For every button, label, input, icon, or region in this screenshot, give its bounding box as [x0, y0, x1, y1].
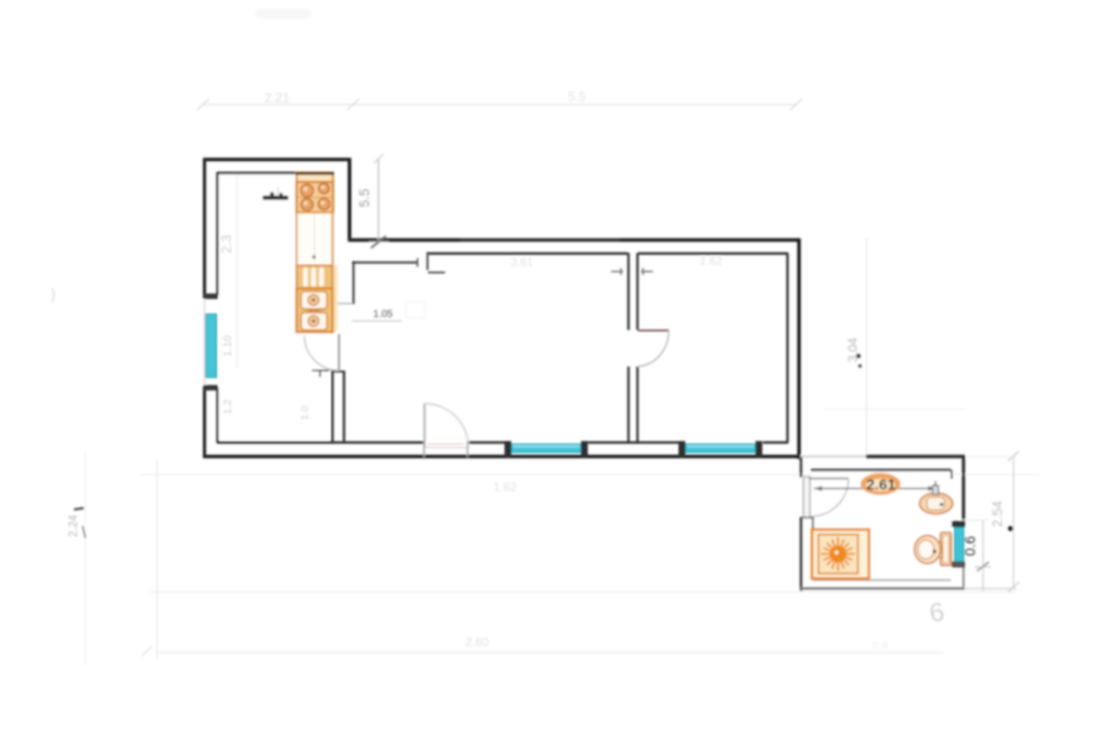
svg-text:1.05: 1.05 — [373, 309, 393, 320]
svg-text:2.21: 2.21 — [264, 90, 289, 105]
svg-text:0.6: 0.6 — [963, 536, 979, 556]
svg-text:1.10: 1.10 — [222, 335, 234, 356]
svg-text:3.04: 3.04 — [846, 338, 860, 362]
svg-text:1.0: 1.0 — [299, 406, 311, 421]
svg-text:0.9: 0.9 — [872, 640, 887, 652]
svg-text:2.62: 2.62 — [700, 256, 722, 268]
svg-text:1.2: 1.2 — [222, 399, 234, 414]
svg-text:3.61: 3.61 — [511, 257, 533, 269]
svg-text:5.5: 5.5 — [568, 89, 586, 104]
svg-text:5.5: 5.5 — [357, 189, 372, 208]
svg-text:6: 6 — [927, 596, 946, 628]
svg-text:2.54: 2.54 — [990, 500, 1005, 527]
svg-text:2.3: 2.3 — [219, 235, 234, 254]
svg-text:2.60: 2.60 — [465, 635, 489, 649]
svg-text:2.24: 2.24 — [68, 514, 80, 537]
svg-text:1.62: 1.62 — [493, 480, 517, 494]
svg-text:2.61: 2.61 — [866, 477, 895, 494]
